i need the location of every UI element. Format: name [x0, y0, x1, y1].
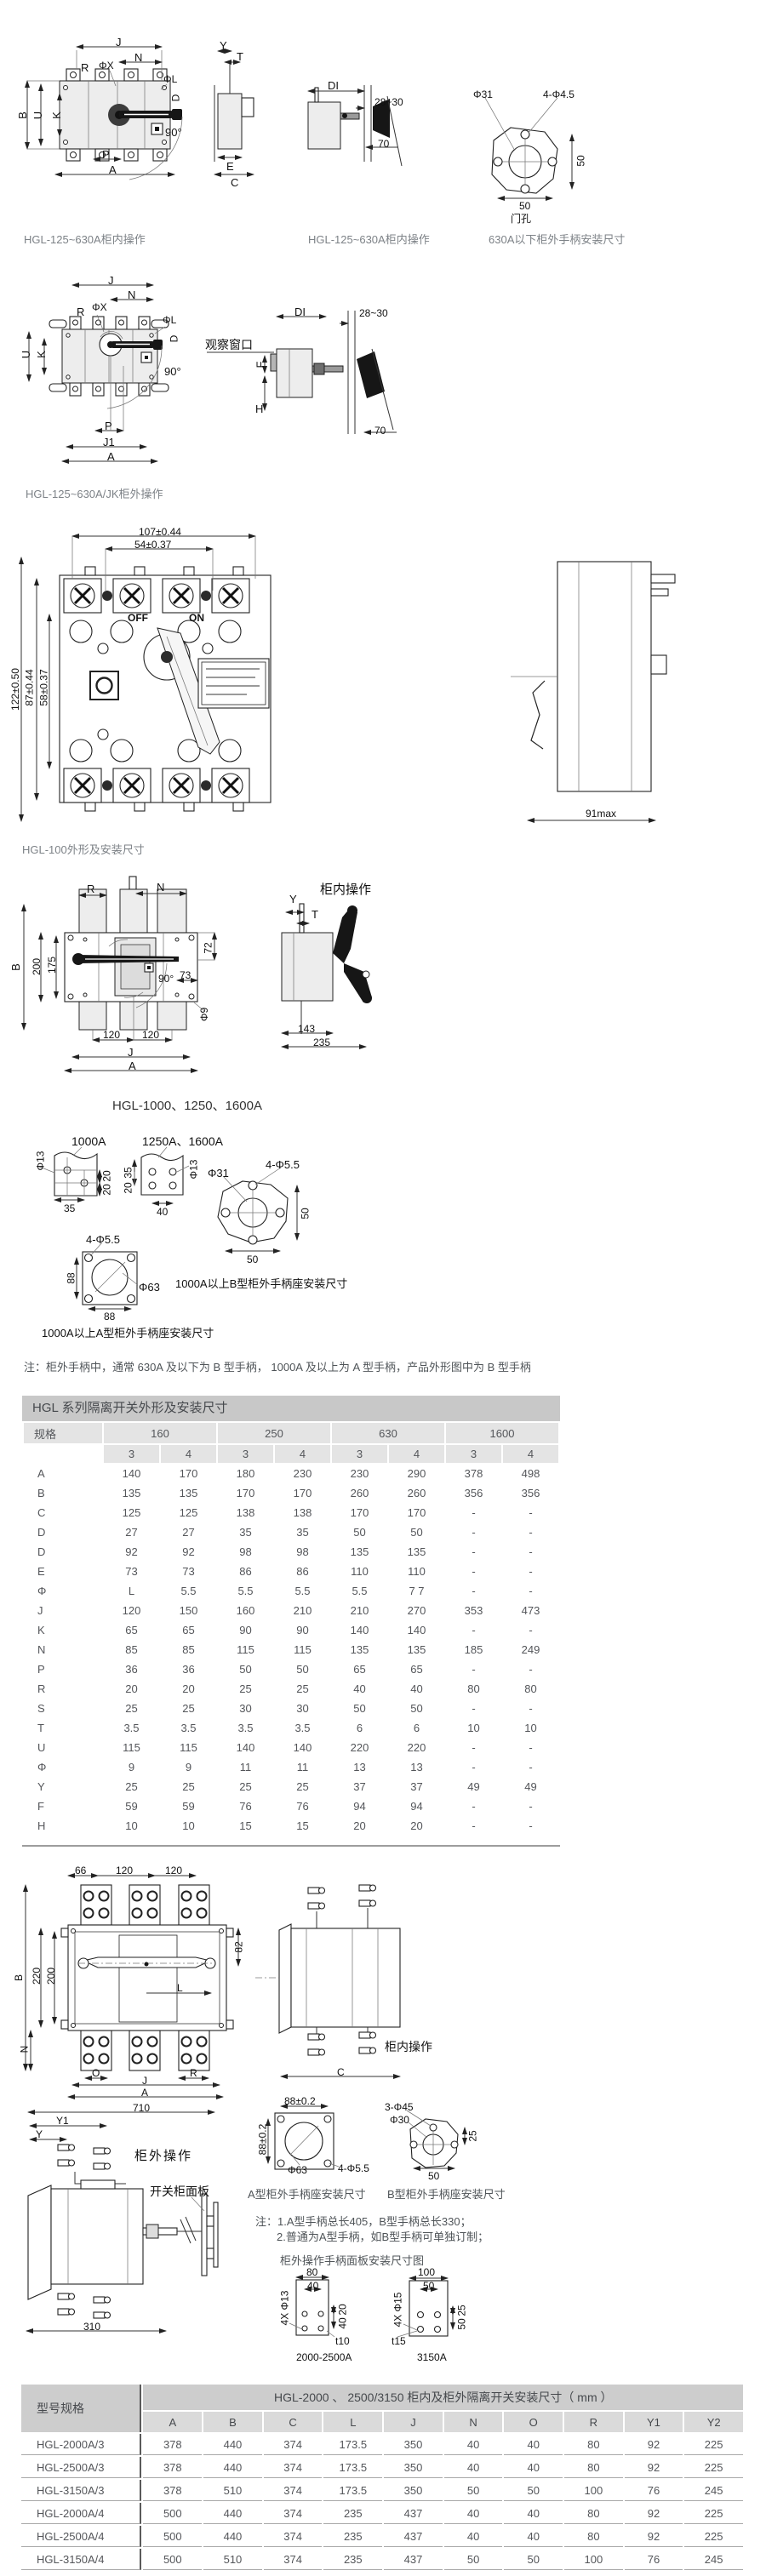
dim-p: P: [102, 149, 110, 160]
group-1600: 1600: [446, 1423, 558, 1443]
panel-drawing-title: 柜外操作手柄面板安装尺寸图: [280, 2252, 424, 2268]
dim-phi13-b: Φ13: [188, 1160, 198, 1179]
dim-cell: 235: [323, 2526, 382, 2547]
dim-cell: 27: [161, 1523, 216, 1541]
table-row: P363650506565--: [24, 1660, 558, 1678]
dim-a4: A: [129, 1060, 136, 1071]
bottom-table-body: HGL-2000A/3378440374173.535040408092225H…: [21, 2434, 743, 2570]
dim-cell: 40: [389, 1680, 444, 1698]
table-row: C125125138138170170--: [24, 1504, 558, 1522]
label-off: OFF: [128, 613, 148, 623]
dim-cell: 59: [104, 1797, 159, 1815]
dim-phix2: ΦX: [92, 302, 107, 312]
dim-175: 175: [47, 957, 57, 974]
bottom-table-header1: 型号规格 HGL-2000 、 2500/3150 柜内及柜外隔离开关安装尺寸（…: [21, 2385, 743, 2410]
table-row: Φ9911111313--: [24, 1758, 558, 1776]
drawing-hgl100: [0, 528, 766, 868]
dim-cell: 210: [275, 1602, 330, 1619]
model-cell: HGL-2000A/4: [21, 2503, 141, 2524]
dim-cell: 92: [104, 1543, 159, 1561]
dim-t4: T: [312, 909, 318, 920]
dim-phi30: Φ30: [390, 2115, 409, 2125]
dim-y4: Y: [289, 894, 297, 905]
col-y2: Y2: [684, 2412, 743, 2432]
label-menkong: 门孔: [511, 214, 531, 224]
dim-cell: 138: [218, 1504, 273, 1522]
caption-seat-b: 1000A以上B型柜外手柄座安装尺寸: [175, 1278, 347, 1289]
dim-cell: -: [446, 1739, 501, 1756]
dim-cell: 135: [104, 1484, 159, 1502]
dim-cell: 76: [218, 1797, 273, 1815]
dim-cell: 86: [275, 1562, 330, 1580]
table-row: HGL-2000A/450044037423543740408092225: [21, 2503, 743, 2524]
dim-cell: 249: [503, 1641, 558, 1659]
dim-cell: -: [503, 1562, 558, 1580]
dim-y1: Y1: [56, 2116, 69, 2126]
label-panel-out: 柜外操作: [134, 2150, 192, 2162]
dim-50v: 50: [576, 155, 586, 166]
dim-cell: 473: [503, 1602, 558, 1619]
dim-j1: J1: [103, 437, 115, 448]
dim-cell: 225: [684, 2457, 743, 2478]
dim-122: 122±0.50: [10, 668, 20, 711]
dim-cell: 50: [504, 2480, 563, 2501]
dim-cell: 220: [389, 1739, 444, 1756]
row-label: K: [24, 1621, 102, 1639]
dim-cell: 374: [264, 2526, 323, 2547]
dim-cell: 40: [504, 2503, 563, 2524]
dim-cell: 110: [332, 1562, 387, 1580]
dim-cell: 225: [684, 2526, 743, 2547]
main-table-title: HGL 系列隔离开关外形及安装尺寸: [22, 1396, 560, 1421]
dim-72: 72: [203, 942, 214, 953]
dim-91max: 91max: [586, 808, 616, 819]
dim-cell: 10: [161, 1817, 216, 1835]
dim-cell: 170: [161, 1465, 216, 1482]
dim-cell: 378: [143, 2434, 202, 2455]
dim-cell: -: [503, 1543, 558, 1561]
dim-cell: 50: [389, 1523, 444, 1541]
dim-cell: 25: [275, 1778, 330, 1796]
dim-cell: 500: [143, 2503, 202, 2524]
dim-cell: 374: [264, 2457, 323, 2478]
dim-cell: 80: [564, 2503, 623, 2524]
dim-20b: 20: [102, 1184, 112, 1195]
dim-cell: 65: [161, 1621, 216, 1639]
dim-cell: 170: [389, 1504, 444, 1522]
dim-cell: 374: [264, 2503, 323, 2524]
dim-cell: 36: [104, 1660, 159, 1678]
dim-cell: 140: [389, 1621, 444, 1639]
pole-col: 4: [275, 1445, 330, 1463]
col-c: C: [264, 2412, 323, 2432]
dim-cell: 260: [389, 1484, 444, 1502]
dim-cell: 100: [564, 2549, 623, 2570]
dim-cell: 115: [218, 1641, 273, 1659]
dim-cell: 40: [332, 1680, 387, 1698]
table-row: T3.53.53.53.5661010: [24, 1719, 558, 1737]
table-row: J120150160210210270353473: [24, 1602, 558, 1619]
row-label: T: [24, 1719, 102, 1737]
dim-200-6: 200: [46, 1968, 56, 1985]
pole-col: 3: [218, 1445, 273, 1463]
row-label: Φ: [24, 1582, 102, 1600]
dim-cell: 15: [218, 1817, 273, 1835]
section-hgl125-630: J N R ΦX ΦL D B U K 90° P A Y T E C DI 2…: [0, 13, 766, 264]
dim-cell: 437: [384, 2549, 443, 2570]
group-160: 160: [104, 1423, 216, 1443]
dim-cell: 120: [104, 1602, 159, 1619]
dim-cell: -: [446, 1562, 501, 1580]
row-label: N: [24, 1641, 102, 1659]
dim-cell: 85: [161, 1641, 216, 1659]
main-table-bottom-rule: [22, 1845, 560, 1847]
row-label: D: [24, 1523, 102, 1541]
dim-cell: 94: [332, 1797, 387, 1815]
dim-j4: J: [128, 1047, 134, 1058]
dim-25: 25: [468, 2130, 478, 2141]
dim-c6: C: [337, 2067, 345, 2077]
dim-cell: 160: [218, 1602, 273, 1619]
dim-cell: 92: [625, 2503, 683, 2524]
dim-c: C: [231, 177, 238, 188]
dim-cell: -: [503, 1504, 558, 1522]
dim-cell: -: [446, 1543, 501, 1561]
section-hgl2000-drawings: 66 120 120 B 220 200 82 N O R L J A 710 …: [0, 1864, 766, 2383]
dim-cell: 510: [203, 2480, 262, 2501]
dim-b: B: [17, 111, 28, 119]
dim-cell: 49: [446, 1778, 501, 1796]
dim-cell: 40: [504, 2526, 563, 2547]
dim-cell: 90: [275, 1621, 330, 1639]
dim-88v: 88: [66, 1272, 77, 1283]
caption-hgl125-3: 630A以下柜外手柄安装尺寸: [489, 231, 625, 247]
dim-cell: 80: [564, 2457, 623, 2478]
dim-cell: 7 7: [389, 1582, 444, 1600]
dim-90: 90°: [165, 127, 182, 138]
dim-k: K: [51, 111, 62, 119]
dim-cell: 37: [332, 1778, 387, 1796]
dim-cell: 5.5: [275, 1582, 330, 1600]
dim-cell: 30: [218, 1699, 273, 1717]
dim-200: 200: [31, 958, 42, 975]
dim-cell: 356: [446, 1484, 501, 1502]
dim-cell: 374: [264, 2549, 323, 2570]
dim-f: F: [254, 362, 266, 368]
model-spec-header: 型号规格: [21, 2385, 141, 2432]
dim-cell: 170: [275, 1484, 330, 1502]
dim-50-b: 50: [428, 2171, 439, 2181]
table-row: HGL-3150A/4500510374235437505010076245: [21, 2549, 743, 2570]
dim-cell: 13: [389, 1758, 444, 1776]
dim-cell: 10: [503, 1719, 558, 1737]
dim-j2: J: [108, 275, 114, 286]
dim-cell: 350: [384, 2480, 443, 2501]
dim-cell: 25: [104, 1778, 159, 1796]
section-hgl125-630-jk: J N R ΦX ΦL D U K 90° P J1 A 观察窗口 DI 28~…: [0, 264, 766, 519]
dim-35b: 35: [123, 1167, 134, 1178]
dim-a2: A: [107, 451, 115, 462]
dim-35a: 35: [64, 1203, 75, 1214]
dim-710: 710: [133, 2103, 150, 2113]
dim-100: 100: [418, 2267, 435, 2277]
dim-phi9: Φ9: [199, 1008, 209, 1021]
dim-cell: 6: [332, 1719, 387, 1737]
row-label: E: [24, 1562, 102, 1580]
dim-cell: 50: [444, 2480, 503, 2501]
dim-54: 54±0.37: [134, 540, 171, 550]
row-label: A: [24, 1465, 102, 1482]
dim-j: J: [116, 37, 122, 48]
dim-cell: 5.5: [332, 1582, 387, 1600]
row-label: R: [24, 1680, 102, 1698]
dim-cell: 235: [323, 2549, 382, 2570]
dim-cell: 98: [218, 1543, 273, 1561]
dim-cell: 173.5: [323, 2457, 382, 2478]
dim-cell: -: [446, 1660, 501, 1678]
dim-cell: 92: [161, 1543, 216, 1561]
dim-120c: 120: [116, 1865, 133, 1876]
dim-cell: 135: [332, 1543, 387, 1561]
dim-cell: 10: [104, 1817, 159, 1835]
table-row: F595976769494--: [24, 1797, 558, 1815]
col-j: J: [384, 2412, 443, 2432]
dim-cell: 110: [389, 1562, 444, 1580]
dim-cell: 5.5: [218, 1582, 273, 1600]
dim-cell: 235: [323, 2503, 382, 2524]
dim-cell: 9: [104, 1758, 159, 1776]
dim-a6: A: [141, 2088, 148, 2098]
label-panel-board: 开关柜面板: [150, 2185, 209, 2197]
dim-cell: 50: [332, 1523, 387, 1541]
dim-cell: 100: [564, 2480, 623, 2501]
dim-cell: 440: [203, 2526, 262, 2547]
label-on: ON: [189, 613, 204, 623]
dim-cell: 3.5: [104, 1719, 159, 1737]
row-label: Y: [24, 1778, 102, 1796]
dim-cell: -: [446, 1523, 501, 1541]
dim-b6: B: [14, 1974, 24, 1981]
dim-cell: 11: [218, 1758, 273, 1776]
row-label: S: [24, 1699, 102, 1717]
table-row: D272735355050--: [24, 1523, 558, 1541]
dim-t: T: [237, 51, 243, 62]
dim-310: 310: [83, 2322, 100, 2332]
table-row: A140170180230230290378498: [24, 1465, 558, 1482]
dim-o: O: [92, 2068, 100, 2078]
dim-a: A: [109, 164, 117, 175]
dim-50h-b: 50: [247, 1254, 258, 1265]
dim-cell: 180: [218, 1465, 273, 1482]
dim-cell: 50: [218, 1660, 273, 1678]
dim-4xphi15: 4X Φ15: [392, 2293, 403, 2328]
dim-120d: 120: [165, 1865, 182, 1876]
dim-82: 82: [234, 1941, 244, 1952]
dim-cell: -: [446, 1504, 501, 1522]
dim-cell: 3.5: [218, 1719, 273, 1737]
row-label: U: [24, 1739, 102, 1756]
note-handle-types: 注：柜外手柄中，通常 630A 及以下为 B 型手柄， 1000A 及以上为 A…: [24, 1358, 531, 1374]
dim-4phi55-b: 4-Φ5.5: [266, 1159, 300, 1170]
dim-4phi55-a: 4-Φ5.5: [86, 1234, 120, 1245]
dim-cell: 20: [332, 1817, 387, 1835]
dim-cell: 115: [104, 1739, 159, 1756]
dim-cell: 170: [332, 1504, 387, 1522]
dim-cell: 115: [161, 1739, 216, 1756]
dim-cell: 80: [564, 2434, 623, 2455]
dim-cell: 140: [275, 1739, 330, 1756]
dim-holes445: 4-Φ4.5: [543, 89, 574, 100]
dim-phix: ΦX: [99, 60, 114, 71]
dim-cell: -: [503, 1660, 558, 1678]
caption-seat-a2: A型柜外手柄座安装尺寸: [248, 2189, 366, 2200]
dim-cell: 76: [625, 2480, 683, 2501]
dim-e: E: [226, 161, 234, 172]
dim-cell: 210: [332, 1602, 387, 1619]
dim-cell: 92: [625, 2526, 683, 2547]
table-row: S252530305050--: [24, 1699, 558, 1717]
table-row: D92929898135135--: [24, 1543, 558, 1561]
dim-cell: 135: [389, 1543, 444, 1561]
label-panel-in-2: 柜内操作: [385, 2041, 432, 2053]
dim-50-p2: 50: [423, 2281, 434, 2291]
dim-r2: R: [77, 306, 84, 317]
dim-phi63: Φ63: [139, 1282, 160, 1293]
dim-u2: U: [20, 351, 31, 358]
dim-cell: 76: [625, 2549, 683, 2570]
dim-cell: -: [446, 1621, 501, 1639]
dim-cell: 65: [104, 1621, 159, 1639]
dim-cell: 10: [446, 1719, 501, 1737]
col-a: A: [143, 2412, 202, 2432]
dim-cell: 85: [104, 1641, 159, 1659]
dim-cell: 50: [504, 2549, 563, 2570]
caption-hgl1000: HGL-1000、1250、1600A: [112, 1096, 262, 1114]
caption-seat-a: 1000A以上A型柜外手柄座安装尺寸: [42, 1328, 214, 1339]
dim-cell: 20: [389, 1817, 444, 1835]
dim-cell: -: [503, 1523, 558, 1541]
dim-cell: 498: [503, 1465, 558, 1482]
section-hgl1000: R N B 200 175 72 90° 73 Φ9 120 120 J A Y…: [0, 868, 766, 1123]
table-row: K65659090140140--: [24, 1621, 558, 1639]
dim-cell: 115: [275, 1641, 330, 1659]
dim-cell: 25: [218, 1778, 273, 1796]
col-r: R: [564, 2412, 623, 2432]
dim-88h2: 88±0.2: [257, 2124, 267, 2156]
drawing-hgl125-630-jk: [0, 264, 766, 519]
bottom-table-wrap: 型号规格 HGL-2000 、 2500/3150 柜内及柜外隔离开关安装尺寸（…: [20, 2383, 745, 2572]
dim-cell: 437: [384, 2503, 443, 2524]
table-row: R2020252540408080: [24, 1680, 558, 1698]
table-pole-header: 3 4 3 4 3 4 3 4: [24, 1445, 558, 1463]
dim-cell: 140: [104, 1465, 159, 1482]
dim-y: Y: [220, 40, 227, 51]
dim-73: 73: [180, 970, 191, 980]
dim-h: H: [255, 403, 263, 414]
dim-50v-p2: 50: [457, 2318, 467, 2329]
dim-cell: -: [503, 1621, 558, 1639]
dim-cell: 378: [143, 2480, 202, 2501]
catalog-page: { "colors":{"accent_gray":"#c8c8c8","hea…: [0, 0, 766, 2576]
dim-cell: 245: [684, 2480, 743, 2501]
dim-cell: -: [503, 1758, 558, 1776]
dim-r4: R: [87, 883, 94, 894]
note-handle-length: 注：1.A型手柄总长405，B型手柄总长330；: [255, 2213, 472, 2229]
dim-cell: 353: [446, 1602, 501, 1619]
dim-cell: 35: [275, 1523, 330, 1541]
dim-120a: 120: [103, 1030, 120, 1040]
dim-cell: -: [503, 1797, 558, 1815]
pole-col: 3: [332, 1445, 387, 1463]
caption-panel1: 2000-2500A: [296, 2352, 352, 2362]
dim-cell: 11: [275, 1758, 330, 1776]
dim-90-2: 90°: [164, 366, 181, 377]
dim-4phi55-2: 4-Φ5.5: [338, 2163, 369, 2173]
dim-cell: 3.5: [161, 1719, 216, 1737]
dim-d2: D: [169, 335, 179, 343]
pole-col: 4: [503, 1445, 558, 1463]
section-handle-seats: Φ13 1000A 35 20 20 1250A、1600A 35 20 40 …: [0, 1132, 766, 1396]
label-panel-in: 柜内操作: [320, 883, 371, 896]
table-row: U115115140140220220--: [24, 1739, 558, 1756]
dim-cell: 185: [446, 1641, 501, 1659]
dim-cell: 76: [275, 1797, 330, 1815]
row-label: F: [24, 1797, 102, 1815]
dim-phi31-b: Φ31: [208, 1168, 229, 1179]
bottom-table: 型号规格 HGL-2000 、 2500/3150 柜内及柜外隔离开关安装尺寸（…: [20, 2383, 745, 2572]
label-1000a: 1000A: [71, 1135, 106, 1147]
model-cell: HGL-2500A/3: [21, 2457, 141, 2478]
dim-n2: N: [128, 289, 135, 300]
dim-cell: 50: [389, 1699, 444, 1717]
dim-25-p2: 25: [457, 2305, 467, 2316]
table-group-header: 规格 160 250 630 1600: [24, 1423, 558, 1443]
caption-hgl125-jk: HGL-125~630A/JK柜外操作: [26, 485, 163, 501]
dim-50h: 50: [519, 201, 530, 211]
row-label: C: [24, 1504, 102, 1522]
dim-50v-b: 50: [300, 1208, 311, 1219]
table-row: HGL-2500A/3378440374173.535040408092225: [21, 2457, 743, 2478]
dim-cell: 225: [684, 2503, 743, 2524]
dim-t15: t15: [392, 2336, 406, 2346]
dim-n4: N: [157, 882, 164, 893]
dim-cell: 27: [104, 1523, 159, 1541]
caption-seat-b2: B型柜外手柄座安装尺寸: [387, 2189, 506, 2200]
dim-220: 220: [31, 1968, 42, 1985]
dim-gap: 28~30: [374, 97, 403, 107]
drawing-handle-seats: [0, 1132, 766, 1396]
dim-cell: 73: [161, 1562, 216, 1580]
dim-cell: 40: [444, 2457, 503, 2478]
dim-cell: 25: [275, 1680, 330, 1698]
dim-cell: 50: [332, 1699, 387, 1717]
section-hgl100: 107±0.44 54±0.37 122±0.50 87±0.44 58±0.3…: [0, 528, 766, 868]
dim-phil: ΦL: [163, 74, 177, 84]
dim-cell: -: [446, 1758, 501, 1776]
dim-d: D: [170, 94, 180, 102]
dim-cell: 40: [444, 2434, 503, 2455]
dim-cell: 15: [275, 1817, 330, 1835]
dim-cell: 350: [384, 2434, 443, 2455]
dim-cell: 5.5: [161, 1582, 216, 1600]
dim-cell: -: [446, 1699, 501, 1717]
col-b: B: [203, 2412, 262, 2432]
dim-n: N: [134, 52, 142, 63]
dim-cell: 374: [264, 2480, 323, 2501]
model-cell: HGL-2500A/4: [21, 2526, 141, 2547]
dim-r: R: [81, 62, 89, 73]
dim-cell: 135: [389, 1641, 444, 1659]
